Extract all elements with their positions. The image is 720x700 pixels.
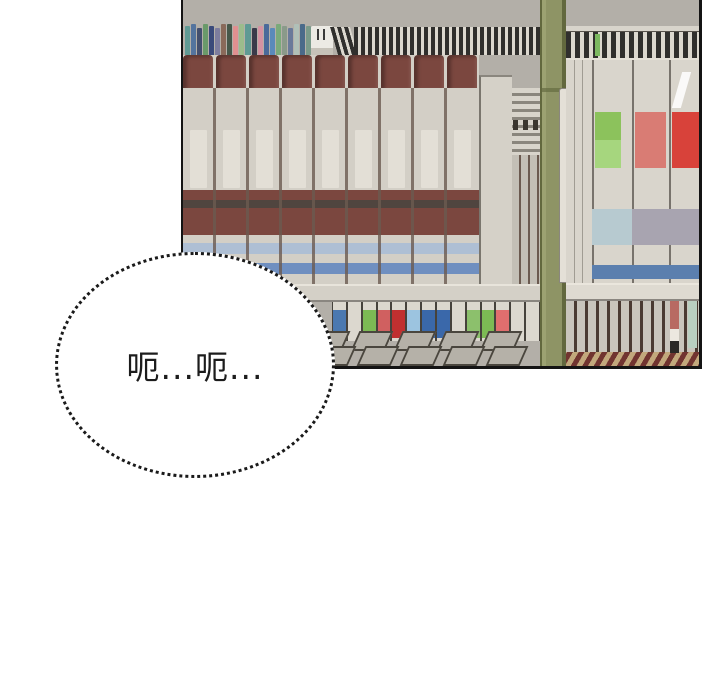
slanted-book: [357, 346, 400, 366]
binder-cap: [282, 55, 312, 88]
binder-cap: [249, 55, 279, 88]
shelf-board-right: [566, 283, 699, 301]
green-patch-top: [595, 112, 621, 140]
small-book-spine: [288, 28, 293, 55]
binder-separator: [444, 88, 447, 284]
small-book-spine: [300, 24, 305, 55]
small-book-spine: [258, 26, 263, 55]
binder-cap: [381, 55, 411, 88]
binder-label: [190, 130, 207, 188]
small-book-spine: [221, 24, 226, 55]
pink-patch: [635, 112, 666, 168]
binder-label: [322, 130, 339, 188]
speech-bubble-text: 呃...呃...: [127, 341, 264, 389]
spine-divider-2: [632, 60, 634, 283]
binder-maroon-band: [183, 190, 479, 235]
stack-dots: [513, 120, 540, 130]
spine-divider-3: [669, 60, 671, 283]
binder-label: [421, 130, 438, 188]
right-bottom-books: [566, 301, 699, 352]
binder-shelf: [183, 55, 479, 284]
binder-cap: [216, 55, 246, 88]
binder-cap: [447, 55, 477, 88]
blue-gray-band-1: [592, 209, 632, 245]
green-patch-bottom: [595, 140, 621, 168]
binder-label: [223, 130, 240, 188]
bookend-base: [311, 48, 333, 55]
bookend-figurine: [311, 26, 333, 55]
right-shelf-spines: [566, 58, 699, 283]
binder-cap: [414, 55, 444, 88]
binder-separator: [279, 88, 282, 284]
binder-separator: [411, 88, 414, 284]
speech-bubble: 呃...呃...: [55, 252, 335, 478]
red-patch: [672, 112, 699, 168]
binder-separator: [246, 88, 249, 284]
small-book-spine: [209, 26, 214, 55]
binder-cap: [348, 55, 378, 88]
spine-divider-1: [592, 60, 594, 283]
bookend-mark-right: [323, 29, 325, 40]
binder-pale-blue-band: [183, 243, 479, 254]
binder-label: [256, 130, 273, 188]
small-book-spine: [282, 26, 287, 55]
bookend-mark-left: [317, 29, 319, 40]
binder-label: [388, 130, 405, 188]
small-book-spine: [191, 24, 196, 55]
binder-dark-stripe: [183, 200, 479, 208]
top-shelf-thin-books: [354, 27, 540, 55]
pink-book-top: [670, 301, 679, 329]
top-shelf-small-books: [185, 24, 311, 55]
slanted-book: [486, 346, 529, 366]
small-book-spine: [197, 28, 202, 55]
white-book-column: [479, 75, 512, 284]
right-thin-books: [566, 32, 699, 58]
small-book-spine: [233, 26, 238, 55]
lower-mid-books: [512, 155, 540, 284]
small-book-spine: [270, 28, 275, 55]
binder-cap: [315, 55, 345, 88]
blue-gray-band-2: [632, 209, 669, 245]
slanted-book: [400, 346, 443, 366]
small-book-spine: [264, 24, 269, 55]
binder-separator: [378, 88, 381, 284]
spine-thin-line-2: [582, 60, 583, 283]
small-book-spine: [245, 24, 250, 55]
green-accent-book: [688, 301, 697, 348]
slanted-book: [443, 346, 486, 366]
binder-label: [289, 130, 306, 188]
pink-book-bottom: [670, 341, 679, 353]
binder-label: [355, 130, 372, 188]
blue-stripe: [592, 265, 699, 279]
small-book-spine: [276, 24, 281, 55]
small-book-spine: [227, 24, 232, 55]
small-book-spine: [252, 28, 257, 55]
spine-thin-line-1: [574, 60, 575, 283]
blue-gray-band-3: [669, 209, 699, 245]
small-book-spine: [215, 28, 220, 55]
binder-caps-row: [183, 55, 479, 88]
pink-accent-book: [670, 301, 679, 353]
comic-page: 呃...呃...: [0, 0, 720, 700]
binder-label: [454, 130, 471, 188]
binder-separator: [345, 88, 348, 284]
spine-highlight: [672, 72, 691, 108]
binder-cap: [183, 55, 213, 88]
small-book-spine: [185, 26, 190, 55]
pink-book-label: [670, 329, 679, 341]
small-book-spine: [294, 24, 299, 55]
small-book-spine: [239, 24, 244, 55]
green-patch: [595, 112, 621, 168]
small-book-spine: [203, 24, 208, 55]
binder-separator: [312, 88, 315, 284]
green-thin-book: [595, 34, 600, 56]
